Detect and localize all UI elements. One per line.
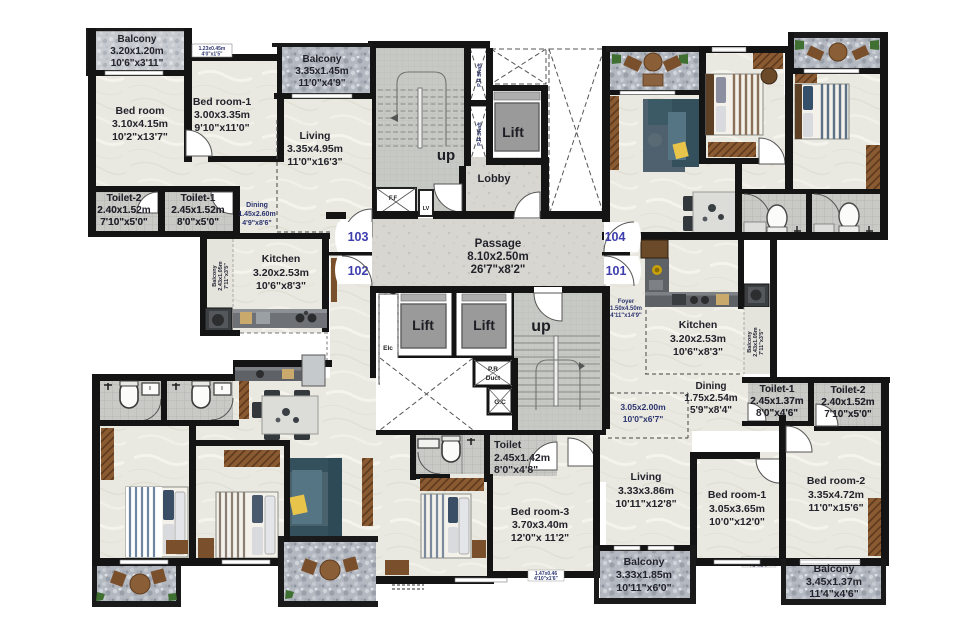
svg-text:G.C: G.C — [494, 399, 506, 406]
svg-text:8'0"x4'6": 8'0"x4'6" — [756, 408, 798, 419]
svg-text:Toilet: Toilet — [494, 439, 522, 451]
svg-text:Lift: Lift — [502, 124, 524, 140]
svg-text:7'11"x3'5": 7'11"x3'5" — [759, 329, 765, 355]
svg-text:Bed room: Bed room — [115, 105, 164, 117]
svg-text:3.00x3.35m: 3.00x3.35m — [194, 109, 250, 121]
svg-text:3.05x3.65m: 3.05x3.65m — [709, 503, 765, 515]
svg-text:Balcony: Balcony — [118, 34, 157, 45]
svg-text:1.45x2.60m: 1.45x2.60m — [238, 211, 275, 218]
svg-text:10'6"x8'3": 10'6"x8'3" — [256, 280, 306, 292]
svg-text:Lift: Lift — [412, 317, 434, 333]
svg-text:2.45x1.37m: 2.45x1.37m — [750, 396, 803, 407]
svg-text:10'11"x12'8": 10'11"x12'8" — [615, 498, 676, 510]
svg-text:Toilet-1: Toilet-1 — [181, 193, 216, 204]
svg-text:10'2"x13'7": 10'2"x13'7" — [112, 131, 168, 143]
svg-text:Toilet-2: Toilet-2 — [107, 193, 142, 204]
svg-text:1.75x2.54m: 1.75x2.54m — [684, 393, 737, 404]
svg-text:4'10"x1'6": 4'10"x1'6" — [534, 576, 558, 582]
svg-text:Toilet-2: Toilet-2 — [831, 385, 866, 396]
svg-text:11'0"x15'6": 11'0"x15'6" — [808, 502, 863, 514]
svg-text:Bed room-3: Bed room-3 — [511, 506, 570, 518]
svg-text:Bed room-1: Bed room-1 — [193, 96, 252, 108]
svg-text:2.40x1.52m: 2.40x1.52m — [97, 205, 150, 216]
svg-text:3.45x1.37m: 3.45x1.37m — [806, 576, 862, 588]
svg-text:LV: LV — [423, 206, 430, 212]
svg-text:11'0"x4'9": 11'0"x4'9" — [298, 78, 345, 89]
svg-text:7'10"x5'0": 7'10"x5'0" — [824, 409, 872, 420]
svg-text:Balcony: Balcony — [814, 563, 855, 575]
svg-text:3.20x2.53m: 3.20x2.53m — [670, 333, 726, 345]
svg-text:Lobby: Lobby — [478, 173, 512, 185]
svg-text:F.F: F.F — [389, 196, 398, 202]
svg-text:4'11"x14'9": 4'11"x14'9" — [610, 313, 642, 319]
svg-text:8'0"x5'0": 8'0"x5'0" — [177, 217, 219, 228]
svg-text:10'11"x6'0": 10'11"x6'0" — [616, 582, 671, 594]
svg-text:up: up — [437, 147, 455, 164]
svg-text:11'0"x16'3": 11'0"x16'3" — [287, 156, 342, 168]
svg-text:3.20x1.20m: 3.20x1.20m — [110, 46, 163, 57]
svg-text:103: 103 — [348, 230, 369, 244]
svg-text:2.45x1.42m: 2.45x1.42m — [494, 452, 550, 464]
svg-text:Bed room-1: Bed room-1 — [708, 489, 767, 501]
svg-text:12'0"x 11'2": 12'0"x 11'2" — [511, 532, 569, 544]
svg-text:7'11"x3'5": 7'11"x3'5" — [224, 263, 230, 289]
svg-text:10'6"x8'3": 10'6"x8'3" — [673, 346, 723, 358]
svg-text:3.33x3.86m: 3.33x3.86m — [618, 485, 674, 497]
svg-text:P.R Shaft: P.R Shaft — [477, 122, 483, 146]
svg-text:104: 104 — [605, 230, 626, 244]
svg-text:102: 102 — [348, 264, 369, 278]
svg-text:Duct: Duct — [486, 375, 501, 382]
svg-text:10'0"x12'0": 10'0"x12'0" — [709, 516, 765, 528]
svg-text:3.35x1.45m: 3.35x1.45m — [295, 66, 348, 77]
svg-text:8.10x2.50m: 8.10x2.50m — [467, 251, 528, 263]
svg-text:3.70x3.40m: 3.70x3.40m — [512, 519, 568, 531]
svg-text:10'0"x6'7": 10'0"x6'7" — [623, 414, 663, 424]
svg-text:Living: Living — [300, 130, 331, 142]
svg-text:Dining: Dining — [246, 202, 268, 209]
svg-text:Kitchen: Kitchen — [679, 319, 718, 331]
svg-text:Dining: Dining — [695, 381, 726, 392]
svg-text:Lift: Lift — [473, 317, 495, 333]
svg-text:Foyer: Foyer — [618, 299, 635, 305]
svg-text:3.35x4.72m: 3.35x4.72m — [808, 489, 864, 501]
svg-text:4'9"x8'6": 4'9"x8'6" — [242, 220, 271, 227]
svg-text:2.45x1.52m: 2.45x1.52m — [171, 205, 224, 216]
svg-text:P.R: P.R — [488, 366, 498, 373]
svg-text:3.20x2.53m: 3.20x2.53m — [253, 267, 309, 279]
svg-text:P.R Shaft: P.R Shaft — [477, 63, 483, 87]
svg-text:Passage: Passage — [475, 238, 522, 250]
svg-text:Toilet-1: Toilet-1 — [760, 384, 795, 395]
svg-text:4'0"x1'5": 4'0"x1'5" — [201, 52, 223, 58]
svg-text:7'10"x5'0": 7'10"x5'0" — [100, 217, 148, 228]
svg-text:11'4"x4'6": 11'4"x4'6" — [809, 588, 858, 600]
svg-text:Bed room-2: Bed room-2 — [807, 475, 866, 487]
svg-text:10'6"x3'11": 10'6"x3'11" — [111, 58, 164, 69]
svg-text:3.33x1.85m: 3.33x1.85m — [616, 569, 672, 581]
svg-text:5'9"x8'4": 5'9"x8'4" — [690, 405, 732, 416]
svg-text:Kitchen: Kitchen — [262, 253, 301, 265]
svg-text:3.35x4.95m: 3.35x4.95m — [287, 143, 343, 155]
svg-text:101: 101 — [606, 264, 627, 278]
svg-text:Balcony: Balcony — [303, 54, 342, 65]
svg-text:3.05x2.00m: 3.05x2.00m — [620, 402, 666, 412]
svg-text:Balcony: Balcony — [624, 556, 665, 568]
svg-text:Elc: Elc — [383, 345, 393, 352]
svg-text:8'0"x4'8": 8'0"x4'8" — [494, 464, 538, 476]
svg-text:up: up — [531, 318, 551, 335]
svg-text:1.50x4.50m: 1.50x4.50m — [610, 306, 642, 312]
svg-text:Living: Living — [631, 471, 662, 483]
svg-text:9'10"x11'0": 9'10"x11'0" — [194, 122, 249, 134]
svg-text:26'7"x8'2": 26'7"x8'2" — [471, 264, 526, 276]
svg-text:3.10x4.15m: 3.10x4.15m — [112, 118, 168, 130]
svg-text:2.40x1.52m: 2.40x1.52m — [821, 397, 874, 408]
